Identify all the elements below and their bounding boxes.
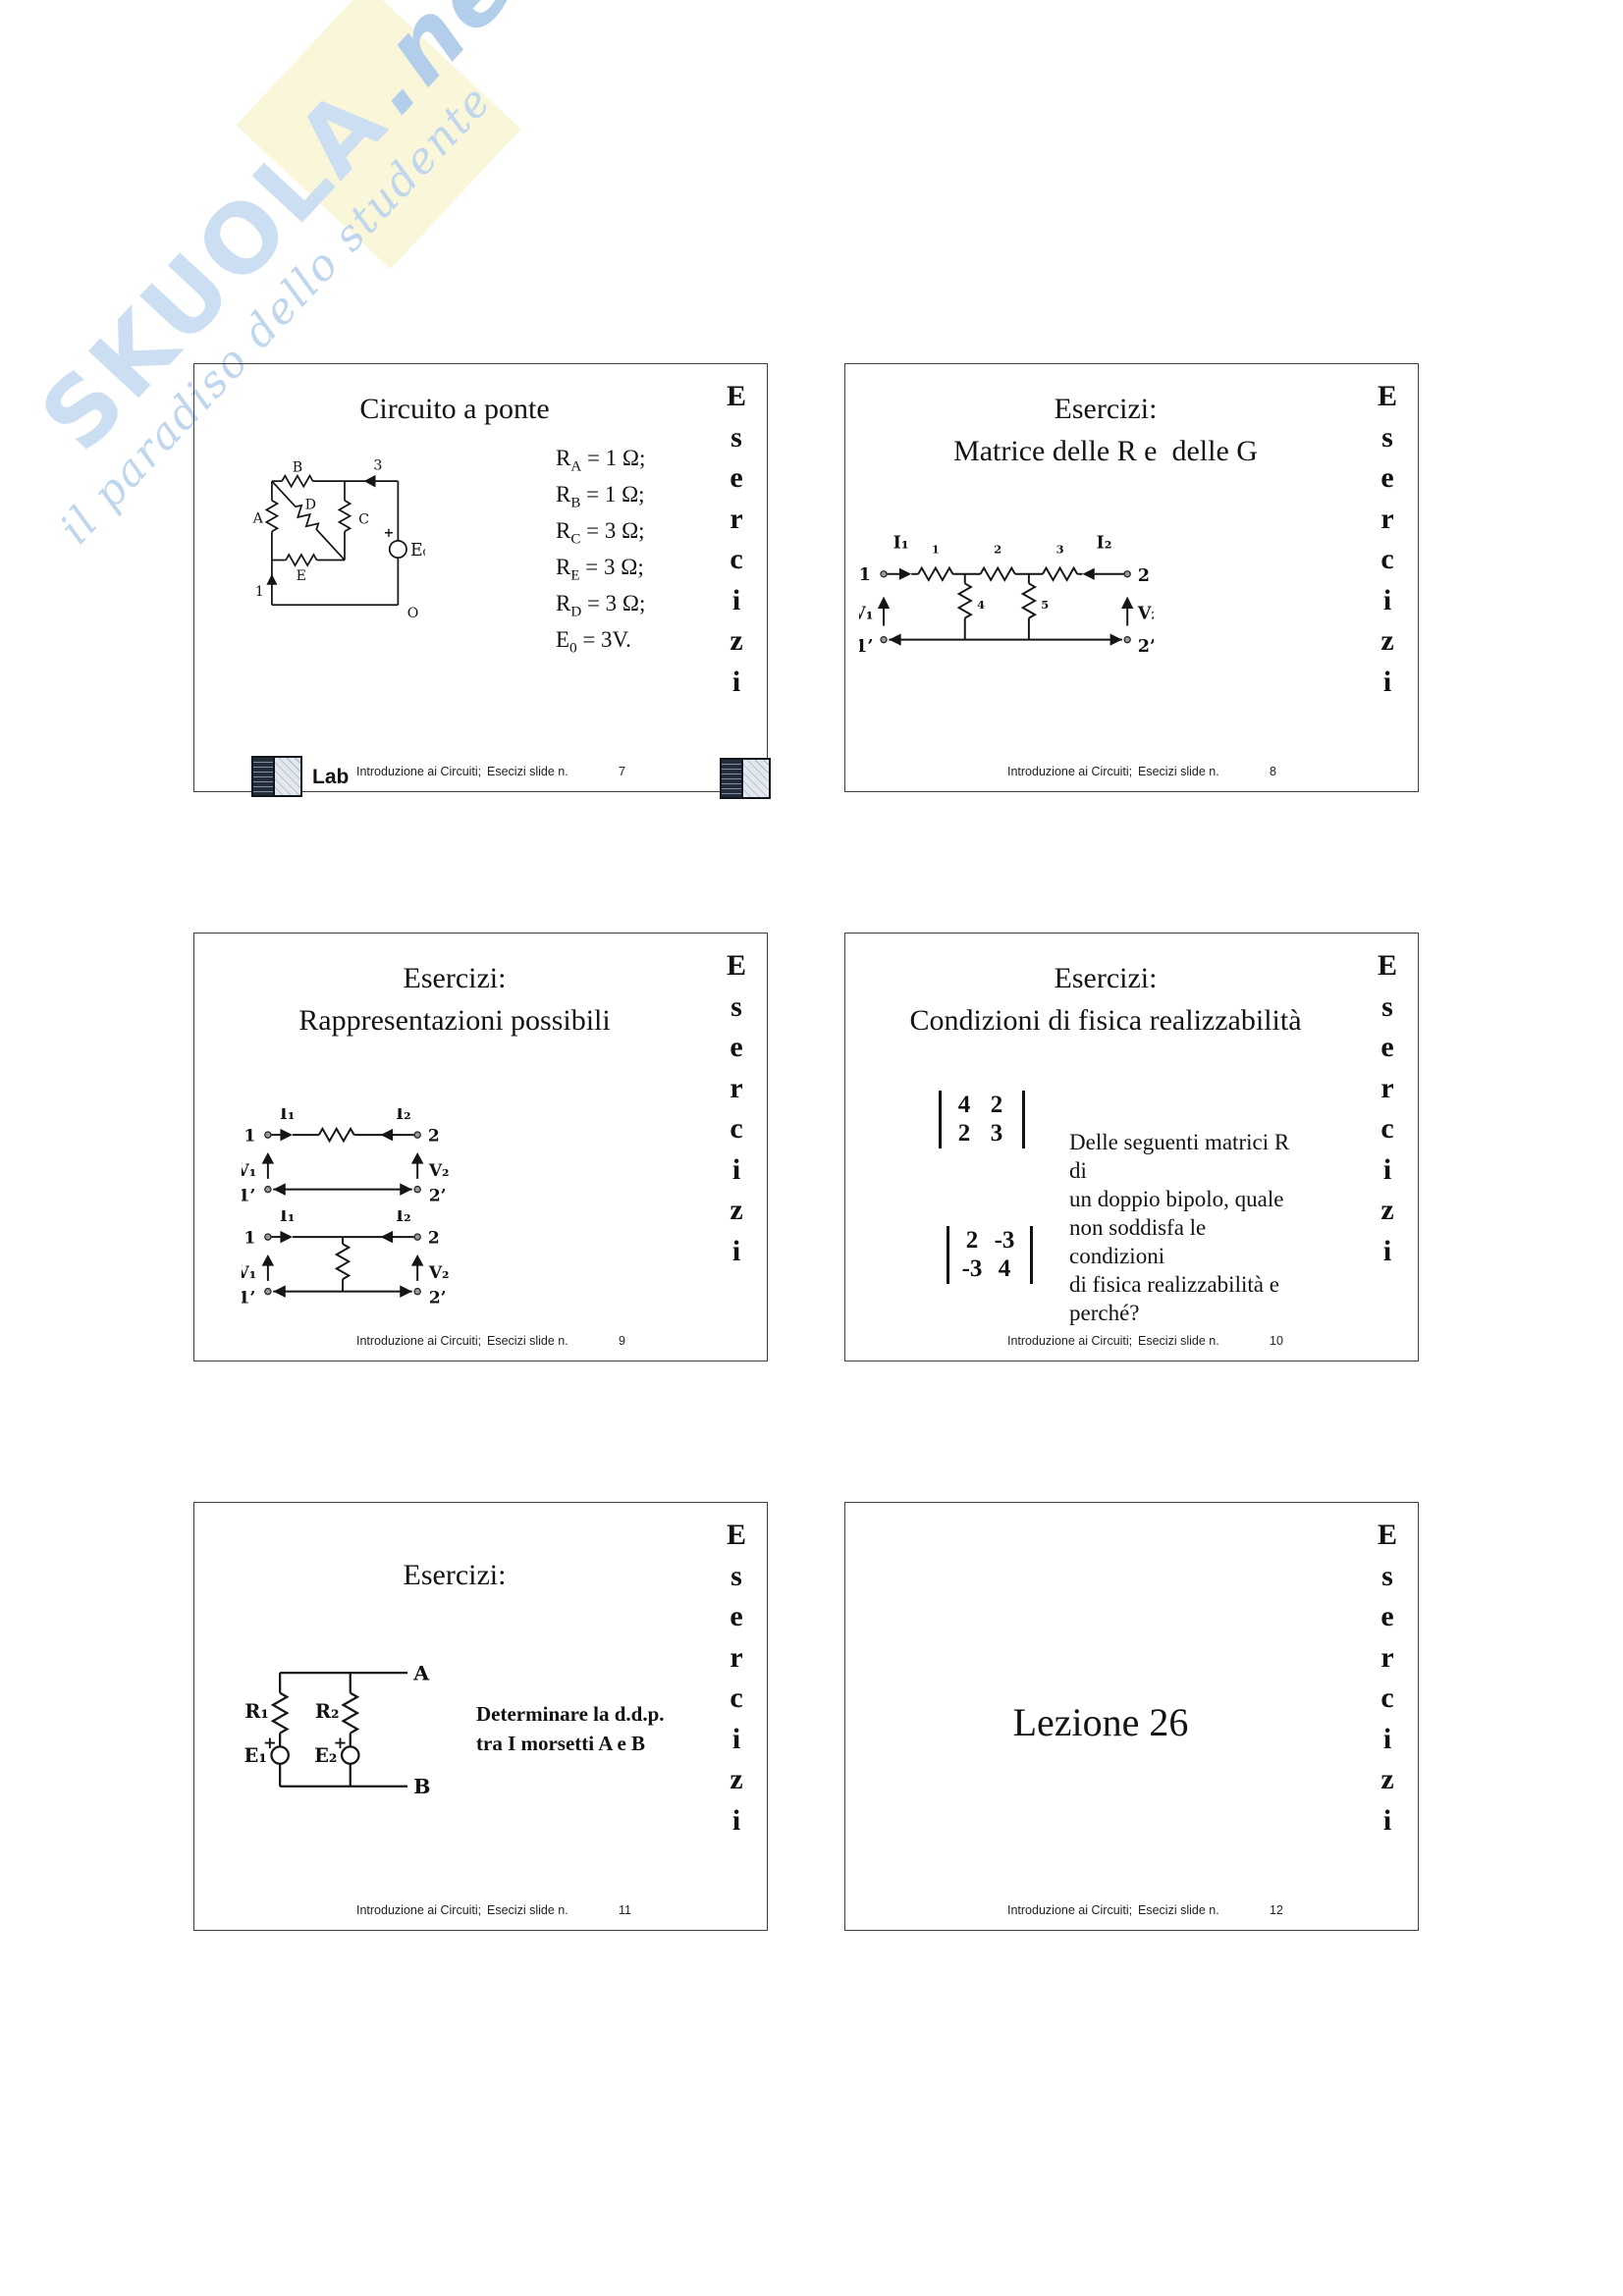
- current-I2-label: I₂: [396, 1108, 410, 1124]
- voltage-V1-label: V₁: [859, 604, 873, 624]
- slide-12: E s e r c i z i Lezione 26 Introduzione …: [844, 1502, 1419, 1931]
- resistor-1-label: 1: [932, 543, 940, 557]
- value-row: E0 = 3V.: [556, 626, 645, 663]
- voltage-V1-label: V₁: [242, 1161, 256, 1181]
- terminal-B-label: B: [413, 1775, 430, 1796]
- footer-slide-label: Esecizi slide n.: [1138, 1903, 1219, 1917]
- current-I1-arrow: [280, 1231, 293, 1244]
- current-I2-label: I₂: [396, 1210, 410, 1226]
- terminal-1-label: 1: [243, 1126, 255, 1146]
- question-text: Delle seguenti matrici R di un doppio bi…: [1069, 1128, 1305, 1327]
- title-line-1: Esercizi:: [845, 957, 1366, 999]
- value-row: RB = 1 Ω;: [556, 481, 645, 517]
- footer-course: Introduzione ai Circuiti;: [356, 765, 481, 778]
- voltage-V1-arrow: [262, 1255, 275, 1266]
- voltage-V2-label: V₂: [428, 1161, 450, 1181]
- terminal-2p-label: 2’: [429, 1186, 447, 1205]
- terminal-2p-label: 2’: [429, 1288, 447, 1308]
- voltage-V2-arrow: [1121, 597, 1133, 609]
- slide-7: Circuito a ponte E s e r c i z i B 3 A D: [193, 363, 768, 792]
- resistor-values-list: RA = 1 Ω; RB = 1 Ω; RC = 3 Ω; RE = 3 Ω; …: [556, 445, 645, 664]
- esercizi-vertical-label: E s e r c i z i: [720, 945, 753, 1271]
- terminal-1-label: 1: [859, 564, 871, 585]
- title-line-2: Matrice delle R e delle G: [845, 430, 1366, 472]
- footer-slide-label: Esecizi slide n.: [1138, 765, 1219, 778]
- two-port-t-network-diagram: 1 I₁ 1 2 3 I₂ 2 4 5 V₁ V₂ 1’ 2’: [859, 529, 1154, 659]
- current-I1-arrow: [280, 1129, 293, 1142]
- footer-slide-number: 11: [619, 1903, 631, 1917]
- two-port-shunt-resistor-diagram: 1 I₁ I₂ 2 V₁ V₂ 1’ 2’: [242, 1210, 453, 1308]
- terminal-1-label: 1: [243, 1228, 255, 1248]
- resistor-4-label: 4: [977, 598, 985, 612]
- terminal-2-label: 2: [428, 1126, 440, 1146]
- slide-10: Esercizi: Condizioni di fisica realizzab…: [844, 933, 1419, 1362]
- resistor-B-label: B: [293, 460, 302, 476]
- resistor-2-label: 2: [994, 543, 1001, 557]
- voltage-V2-arrow: [411, 1255, 424, 1266]
- resistor-R2-label: R₂: [315, 1700, 340, 1723]
- terminal-2p-label: 2’: [1138, 636, 1154, 657]
- value-row: RE = 3 Ω;: [556, 554, 645, 590]
- resistor-3-label: 3: [1056, 543, 1064, 557]
- title-line-2: Rappresentazioni possibili: [194, 999, 715, 1041]
- node-O-label: O: [407, 606, 419, 620]
- lab-logo: [251, 756, 302, 797]
- voltage-V2-arrow: [411, 1152, 424, 1164]
- slide-8: Esercizi: Matrice delle R e delle G E s …: [844, 363, 1419, 792]
- source-plus-sign: +: [384, 525, 395, 540]
- resistor-5-label: 5: [1041, 598, 1049, 612]
- matrix-2: 2-3 -34: [947, 1226, 1033, 1284]
- title-line-1: Esercizi:: [845, 388, 1366, 430]
- footer-slide-label: Esecizi slide n.: [487, 1903, 568, 1917]
- node-1-label: 1: [255, 584, 264, 600]
- footer-course: Introduzione ai Circuiti;: [1007, 1903, 1132, 1917]
- voltage-V1-arrow: [262, 1152, 275, 1164]
- slide-title: Esercizi: Matrice delle R e delle G: [845, 388, 1366, 472]
- slide-title: Esercizi:: [194, 1554, 715, 1596]
- esercizi-vertical-label: E s e r c i z i: [720, 1515, 753, 1841]
- matrix-1: 42 23: [939, 1091, 1025, 1148]
- voltage-V2-label: V₂: [1137, 604, 1154, 624]
- current-I1-label: I₁: [280, 1210, 295, 1226]
- footer-slide-number: 9: [619, 1334, 625, 1348]
- lesson-title: Lezione 26: [845, 1699, 1356, 1745]
- footer-slide-label: Esecizi slide n.: [1138, 1334, 1219, 1348]
- resistor-C-label: C: [358, 512, 369, 528]
- footer-slide-number: 12: [1270, 1903, 1283, 1917]
- terminal-2-label: 2: [1138, 565, 1150, 586]
- footer-slide-label: Esecizi slide n.: [487, 765, 568, 778]
- voltage-V2-label: V₂: [428, 1263, 450, 1283]
- slide-11: Esercizi: E s e r c i z i R₁ R₂ + + E₁ E…: [193, 1502, 768, 1931]
- lab-logo-right: [720, 758, 771, 799]
- footer-slide-number: 10: [1270, 1334, 1283, 1348]
- terminal-2-label: 2: [428, 1228, 440, 1248]
- lab-label: Lab: [312, 766, 349, 789]
- terminal-1p-label: 1’: [242, 1186, 255, 1205]
- esercizi-vertical-label: E s e r c i z i: [1371, 945, 1404, 1271]
- terminal-1p-label: 1’: [859, 636, 873, 657]
- current-I1-label: I₁: [280, 1108, 295, 1124]
- bridge-circuit-diagram: B 3 A D C E 1 O + E₀: [224, 427, 425, 620]
- voltage-V1-arrow: [878, 597, 890, 609]
- current-I2-arrow: [381, 1231, 394, 1244]
- terminal-1p-label: 1’: [242, 1288, 255, 1308]
- current-I2-label: I₂: [1096, 532, 1111, 553]
- task-text: Determinare la d.d.p. tra I morsetti A e…: [476, 1699, 665, 1758]
- esercizi-vertical-label: E s e r c i z i: [720, 376, 753, 702]
- current-arrow-3: [364, 475, 376, 488]
- resistor-E-label: E: [297, 568, 306, 584]
- footer-slide-number: 7: [619, 765, 625, 778]
- terminal-A-label: A: [412, 1666, 430, 1684]
- source-E1-label: E₁: [244, 1744, 267, 1767]
- esercizi-vertical-label: E s e r c i z i: [1371, 1515, 1404, 1841]
- footer-slide-label: Esecizi slide n.: [487, 1334, 568, 1348]
- value-row: RC = 3 Ω;: [556, 517, 645, 554]
- resistor-A-label: A: [252, 511, 264, 527]
- voltage-source-E0: [390, 541, 406, 558]
- resistor-R1-label: R₁: [244, 1700, 269, 1723]
- current-I1-arrow: [899, 568, 911, 580]
- footer-course: Introduzione ai Circuiti;: [356, 1334, 481, 1348]
- title-line-2: Condizioni di fisica realizzabilità: [845, 999, 1366, 1041]
- value-row: RA = 1 Ω;: [556, 445, 645, 481]
- footer-course: Introduzione ai Circuiti;: [356, 1903, 481, 1917]
- current-I1-label: I₁: [893, 532, 909, 553]
- two-port-series-resistor-diagram: 1 I₁ I₂ 2 V₁ V₂ 1’ 2’: [242, 1108, 453, 1205]
- resistor-D-label: D: [305, 498, 316, 513]
- footer-slide-number: 8: [1270, 765, 1276, 778]
- title-line-1: Esercizi:: [194, 957, 715, 999]
- voltage-V1-label: V₁: [242, 1263, 256, 1283]
- node-3-label: 3: [373, 457, 382, 473]
- current-I2-arrow: [381, 1129, 394, 1142]
- esercizi-vertical-label: E s e r c i z i: [1371, 376, 1404, 702]
- footer-course: Introduzione ai Circuiti;: [1007, 1334, 1132, 1348]
- scanned-slide-handout-page: { "watermark": { "brand": "SKUOLA", "suf…: [0, 0, 1623, 2296]
- value-row: RD = 3 Ω;: [556, 590, 645, 626]
- slide-title: Circuito a ponte: [194, 388, 715, 430]
- source-E0-label: E₀: [410, 541, 425, 561]
- current-arrow-1: [266, 574, 277, 585]
- slide-title: Esercizi: Condizioni di fisica realizzab…: [845, 957, 1366, 1041]
- slide-9: Esercizi: Rappresentazioni possibili E s…: [193, 933, 768, 1362]
- footer-course: Introduzione ai Circuiti;: [1007, 765, 1132, 778]
- parallel-sources-circuit-diagram: R₁ R₂ + + E₁ E₂ A B: [239, 1666, 440, 1796]
- source-E2-label: E₂: [314, 1744, 337, 1767]
- current-I2-arrow: [1082, 568, 1094, 580]
- slide-title: Esercizi: Rappresentazioni possibili: [194, 957, 715, 1041]
